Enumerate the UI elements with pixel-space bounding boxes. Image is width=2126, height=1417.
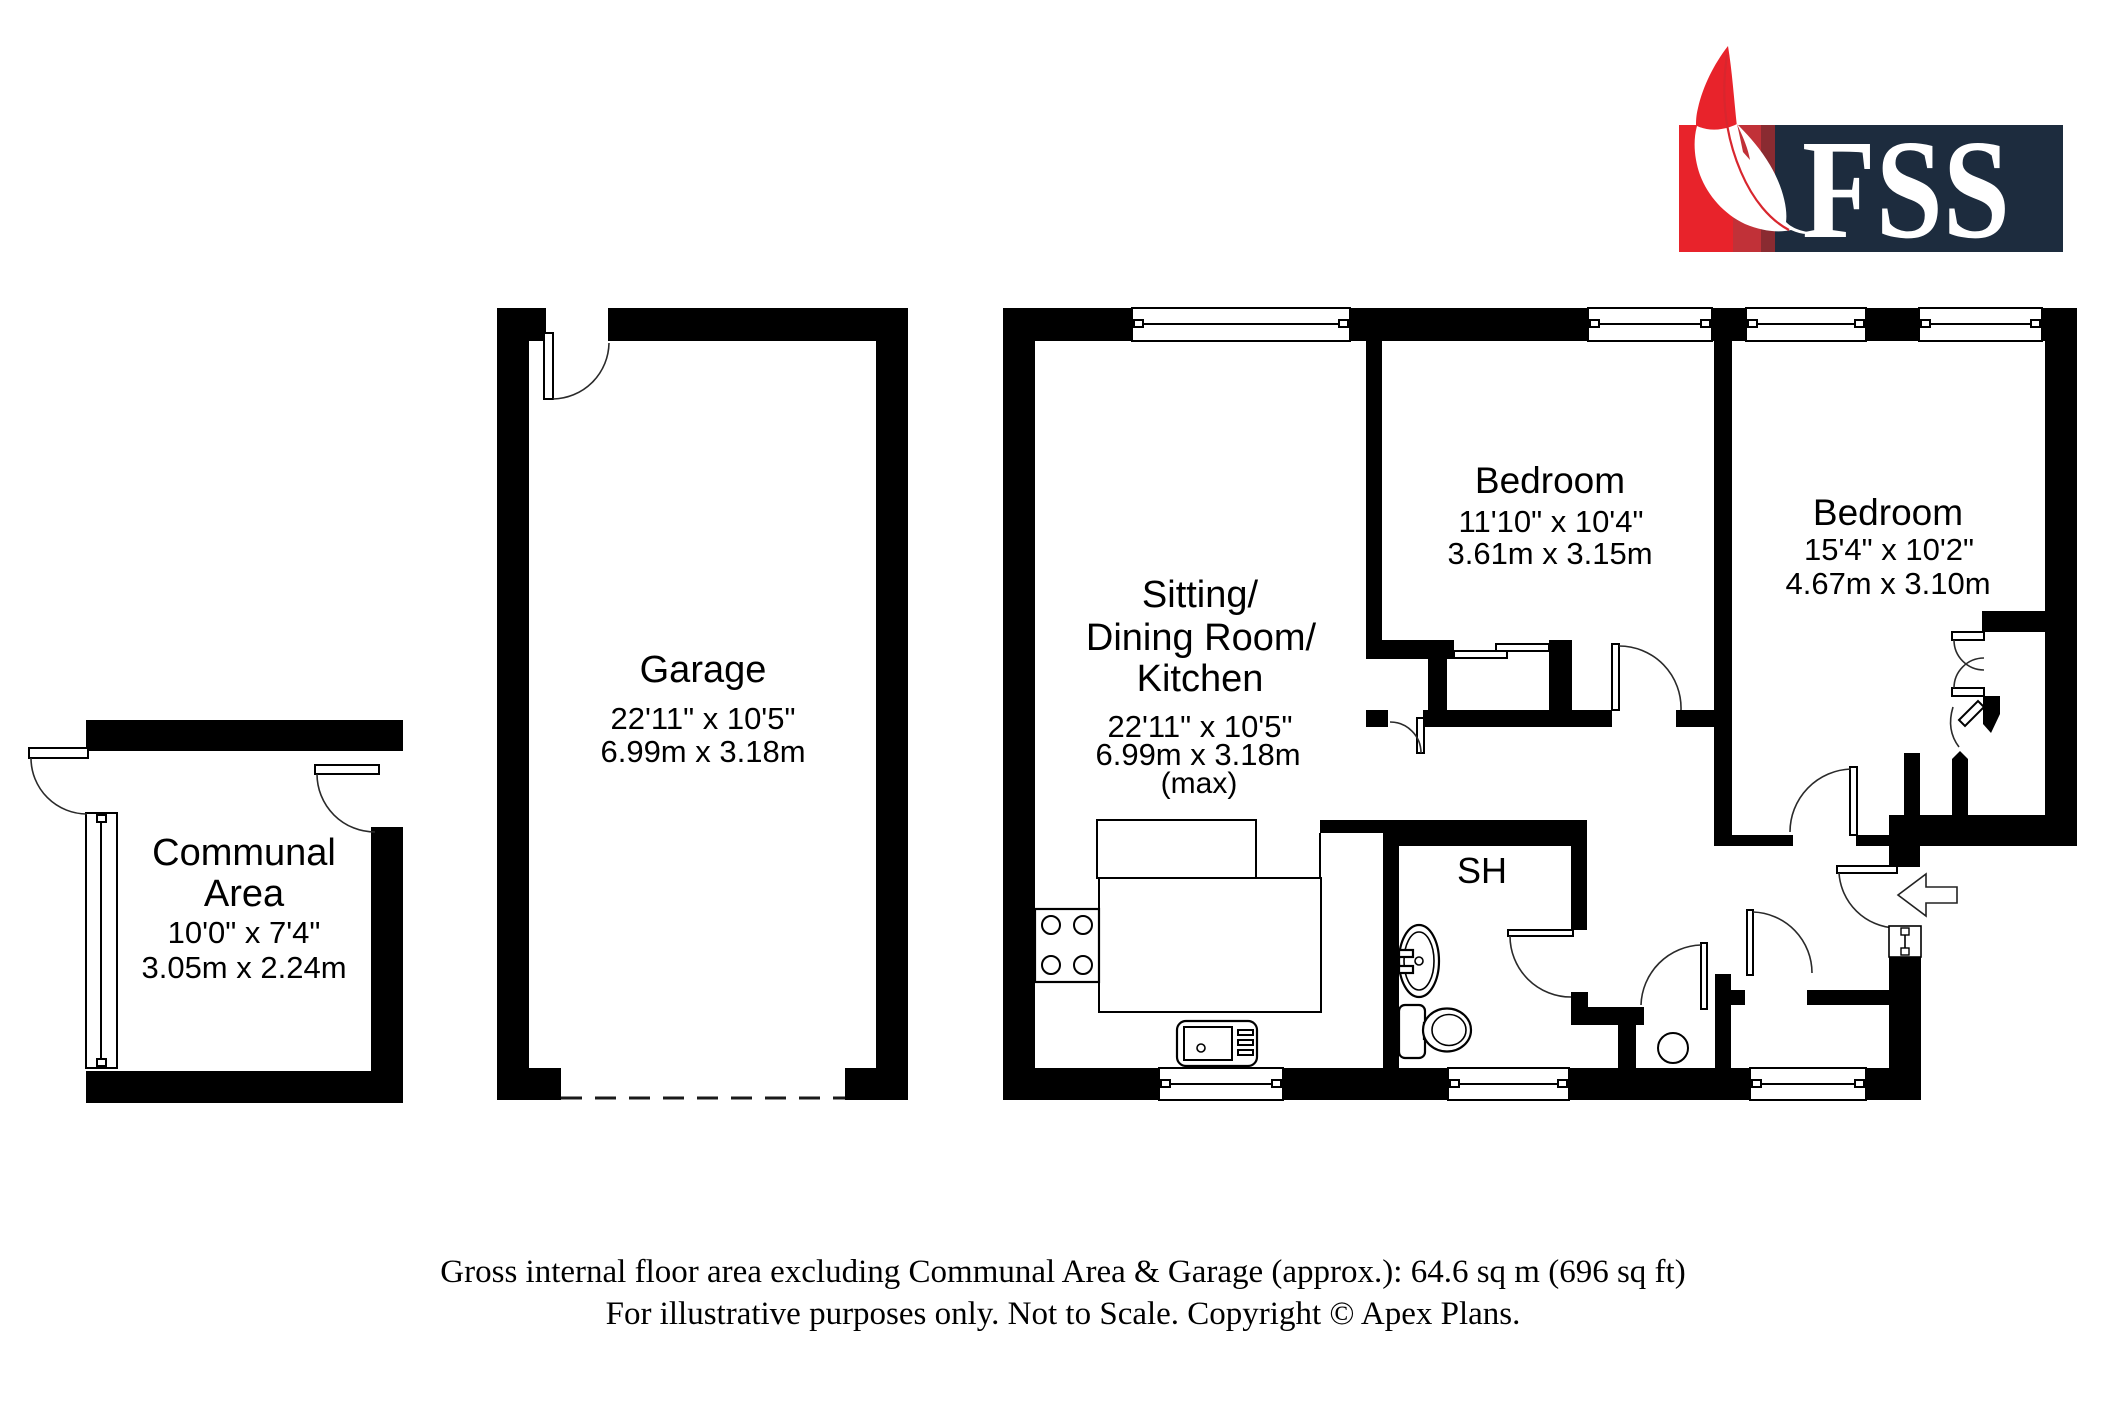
svg-text:SH: SH <box>1457 850 1507 891</box>
svg-text:Bedroom: Bedroom <box>1813 492 1963 533</box>
svg-text:4.67m x 3.10m: 4.67m x 3.10m <box>1785 566 1990 601</box>
svg-text:3.61m x 3.15m: 3.61m x 3.15m <box>1447 536 1652 571</box>
svg-text:15'4" x 10'2": 15'4" x 10'2" <box>1804 532 1974 567</box>
svg-text:3.05m x 2.24m: 3.05m x 2.24m <box>141 950 346 985</box>
svg-text:6.99m x 3.18m: 6.99m x 3.18m <box>600 734 805 769</box>
svg-text:Garage: Garage <box>640 649 767 691</box>
svg-text:Communal: Communal <box>152 832 336 874</box>
svg-text:Gross internal floor area excl: Gross internal floor area excluding Comm… <box>440 1254 1685 1290</box>
svg-text:Area: Area <box>204 873 285 915</box>
svg-text:(max): (max) <box>1161 767 1238 800</box>
svg-text:10'0" x 7'4": 10'0" x 7'4" <box>168 915 321 950</box>
svg-text:Dining Room/: Dining Room/ <box>1086 617 1317 659</box>
svg-text:Sitting/: Sitting/ <box>1142 574 1259 616</box>
svg-text:11'10" x 10'4": 11'10" x 10'4" <box>1459 504 1644 539</box>
svg-text:Kitchen: Kitchen <box>1137 658 1264 700</box>
svg-text:For illustrative purposes only: For illustrative purposes only. Not to S… <box>606 1296 1521 1332</box>
svg-text:FSS: FSS <box>1802 110 2010 268</box>
svg-text:Bedroom: Bedroom <box>1475 460 1625 501</box>
svg-text:22'11" x 10'5": 22'11" x 10'5" <box>611 701 796 736</box>
